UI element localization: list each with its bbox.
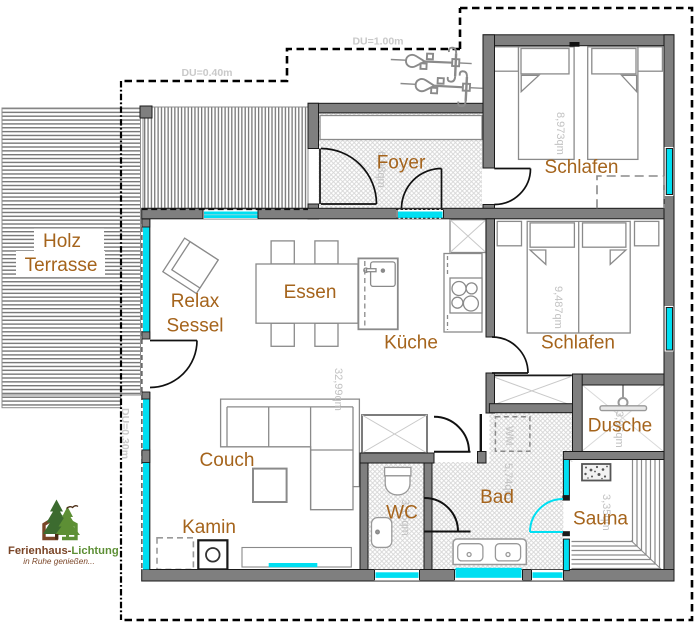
svg-text:Holz: Holz: [43, 231, 81, 252]
svg-text:Schlafen: Schlafen: [541, 333, 615, 354]
svg-text:9,487qm: 9,487qm: [552, 286, 564, 329]
svg-text:Sauna: Sauna: [573, 509, 628, 530]
svg-text:Essen: Essen: [284, 282, 337, 303]
svg-text:DU=0.30m: DU=0.30m: [119, 408, 131, 459]
svg-text:Bad: Bad: [480, 487, 514, 508]
svg-text:32,99qm: 32,99qm: [332, 368, 344, 411]
svg-text:Relax: Relax: [171, 291, 220, 312]
svg-text:Couch: Couch: [200, 450, 255, 471]
svg-text:in Ruhe genießen...: in Ruhe genießen...: [23, 557, 94, 566]
svg-text:Ferienhaus-Lichtung: Ferienhaus-Lichtung: [8, 545, 119, 557]
svg-text:Sessel: Sessel: [166, 316, 223, 337]
svg-text:WC: WC: [386, 503, 418, 524]
svg-text:DU=0.40m: DU=0.40m: [181, 67, 232, 79]
svg-text:Foyer: Foyer: [377, 153, 426, 174]
svg-text:Kamin: Kamin: [182, 517, 236, 538]
svg-text:8,973qm: 8,973qm: [554, 112, 566, 155]
svg-text:Terrasse: Terrasse: [25, 255, 98, 276]
svg-text:Dusche: Dusche: [588, 416, 652, 437]
svg-text:DU=1.00m: DU=1.00m: [352, 36, 403, 48]
svg-text:Schlafen: Schlafen: [545, 157, 619, 178]
svg-text:Küche: Küche: [384, 333, 438, 354]
svg-text:WM: WM: [503, 426, 515, 446]
